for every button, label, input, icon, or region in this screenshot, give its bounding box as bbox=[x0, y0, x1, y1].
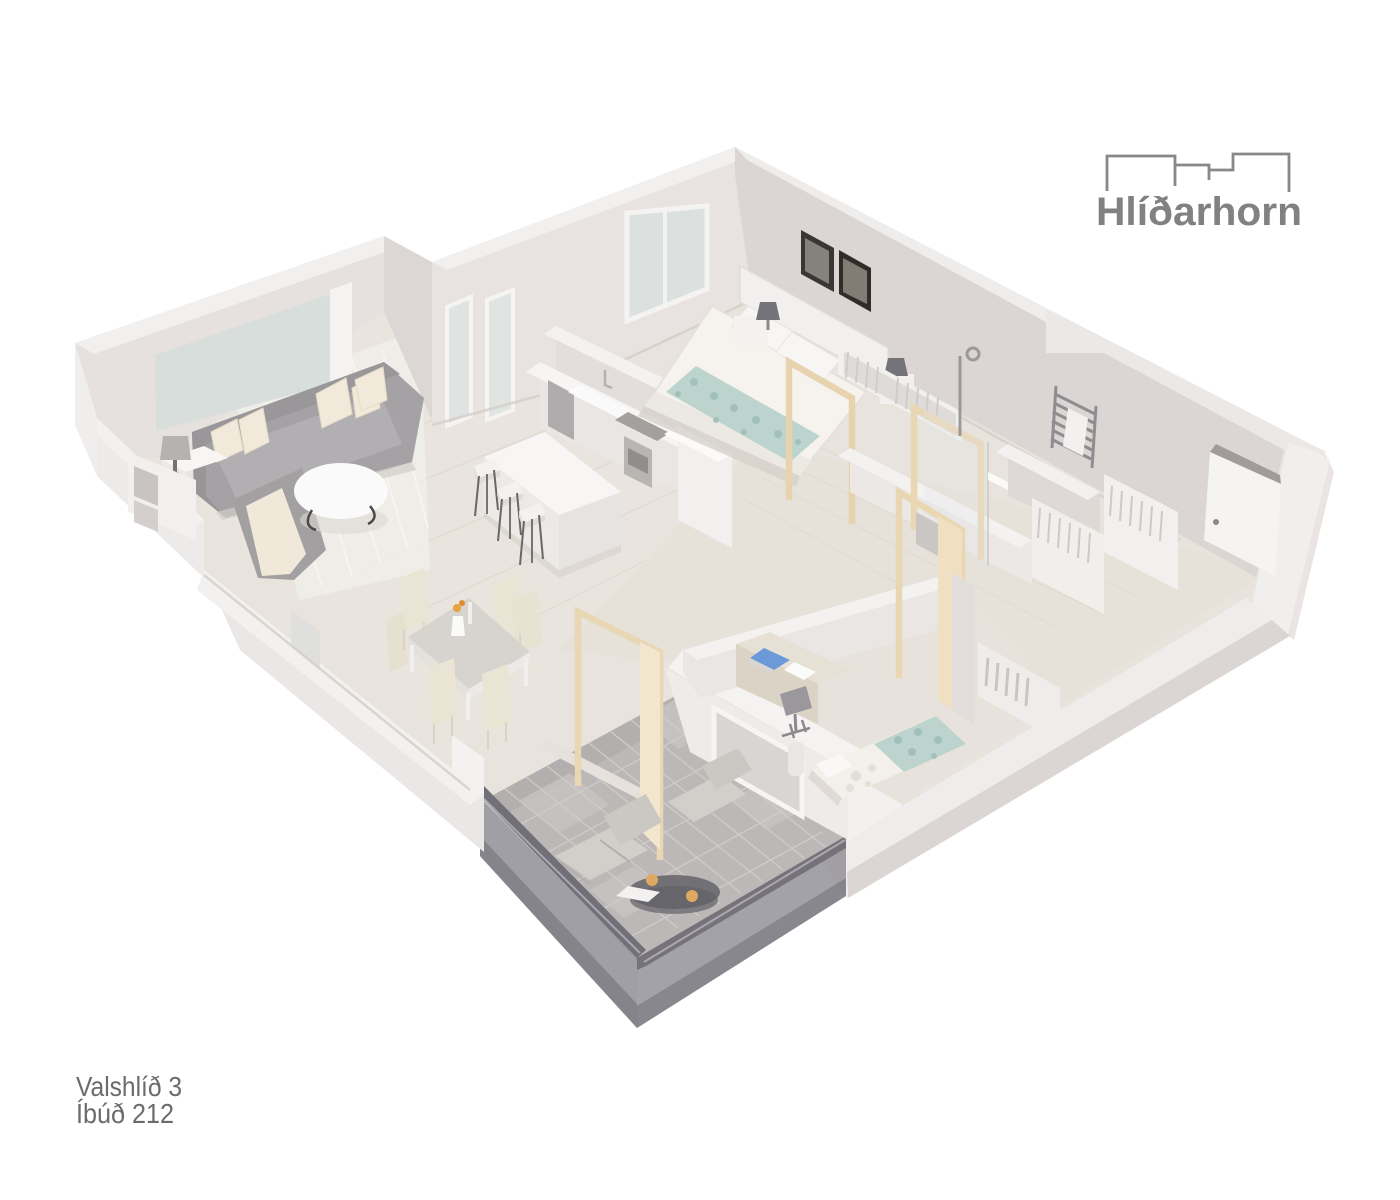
svg-text:Íbúð 212: Íbúð 212 bbox=[76, 1098, 174, 1129]
svg-text:Hlíðarhorn: Hlíðarhorn bbox=[1096, 190, 1302, 234]
